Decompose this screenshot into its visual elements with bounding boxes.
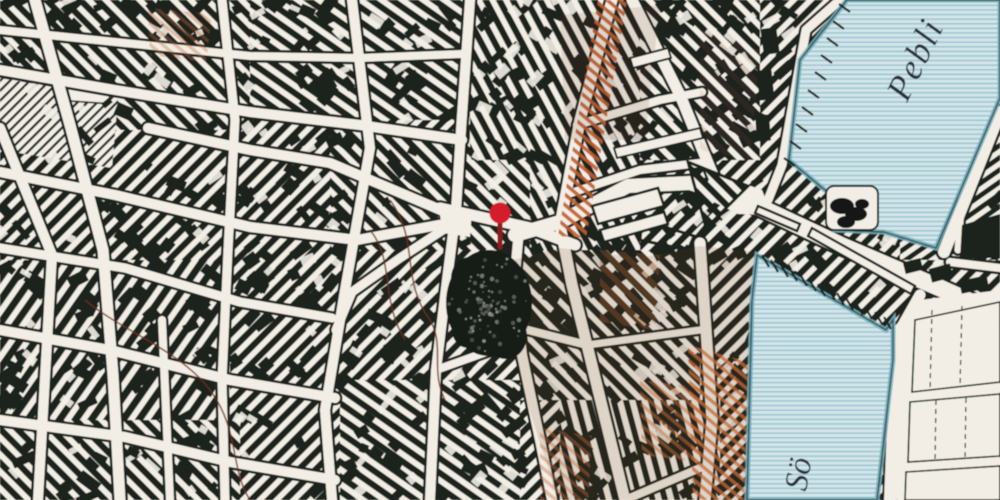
- svg-text:Sö: Sö: [778, 455, 819, 494]
